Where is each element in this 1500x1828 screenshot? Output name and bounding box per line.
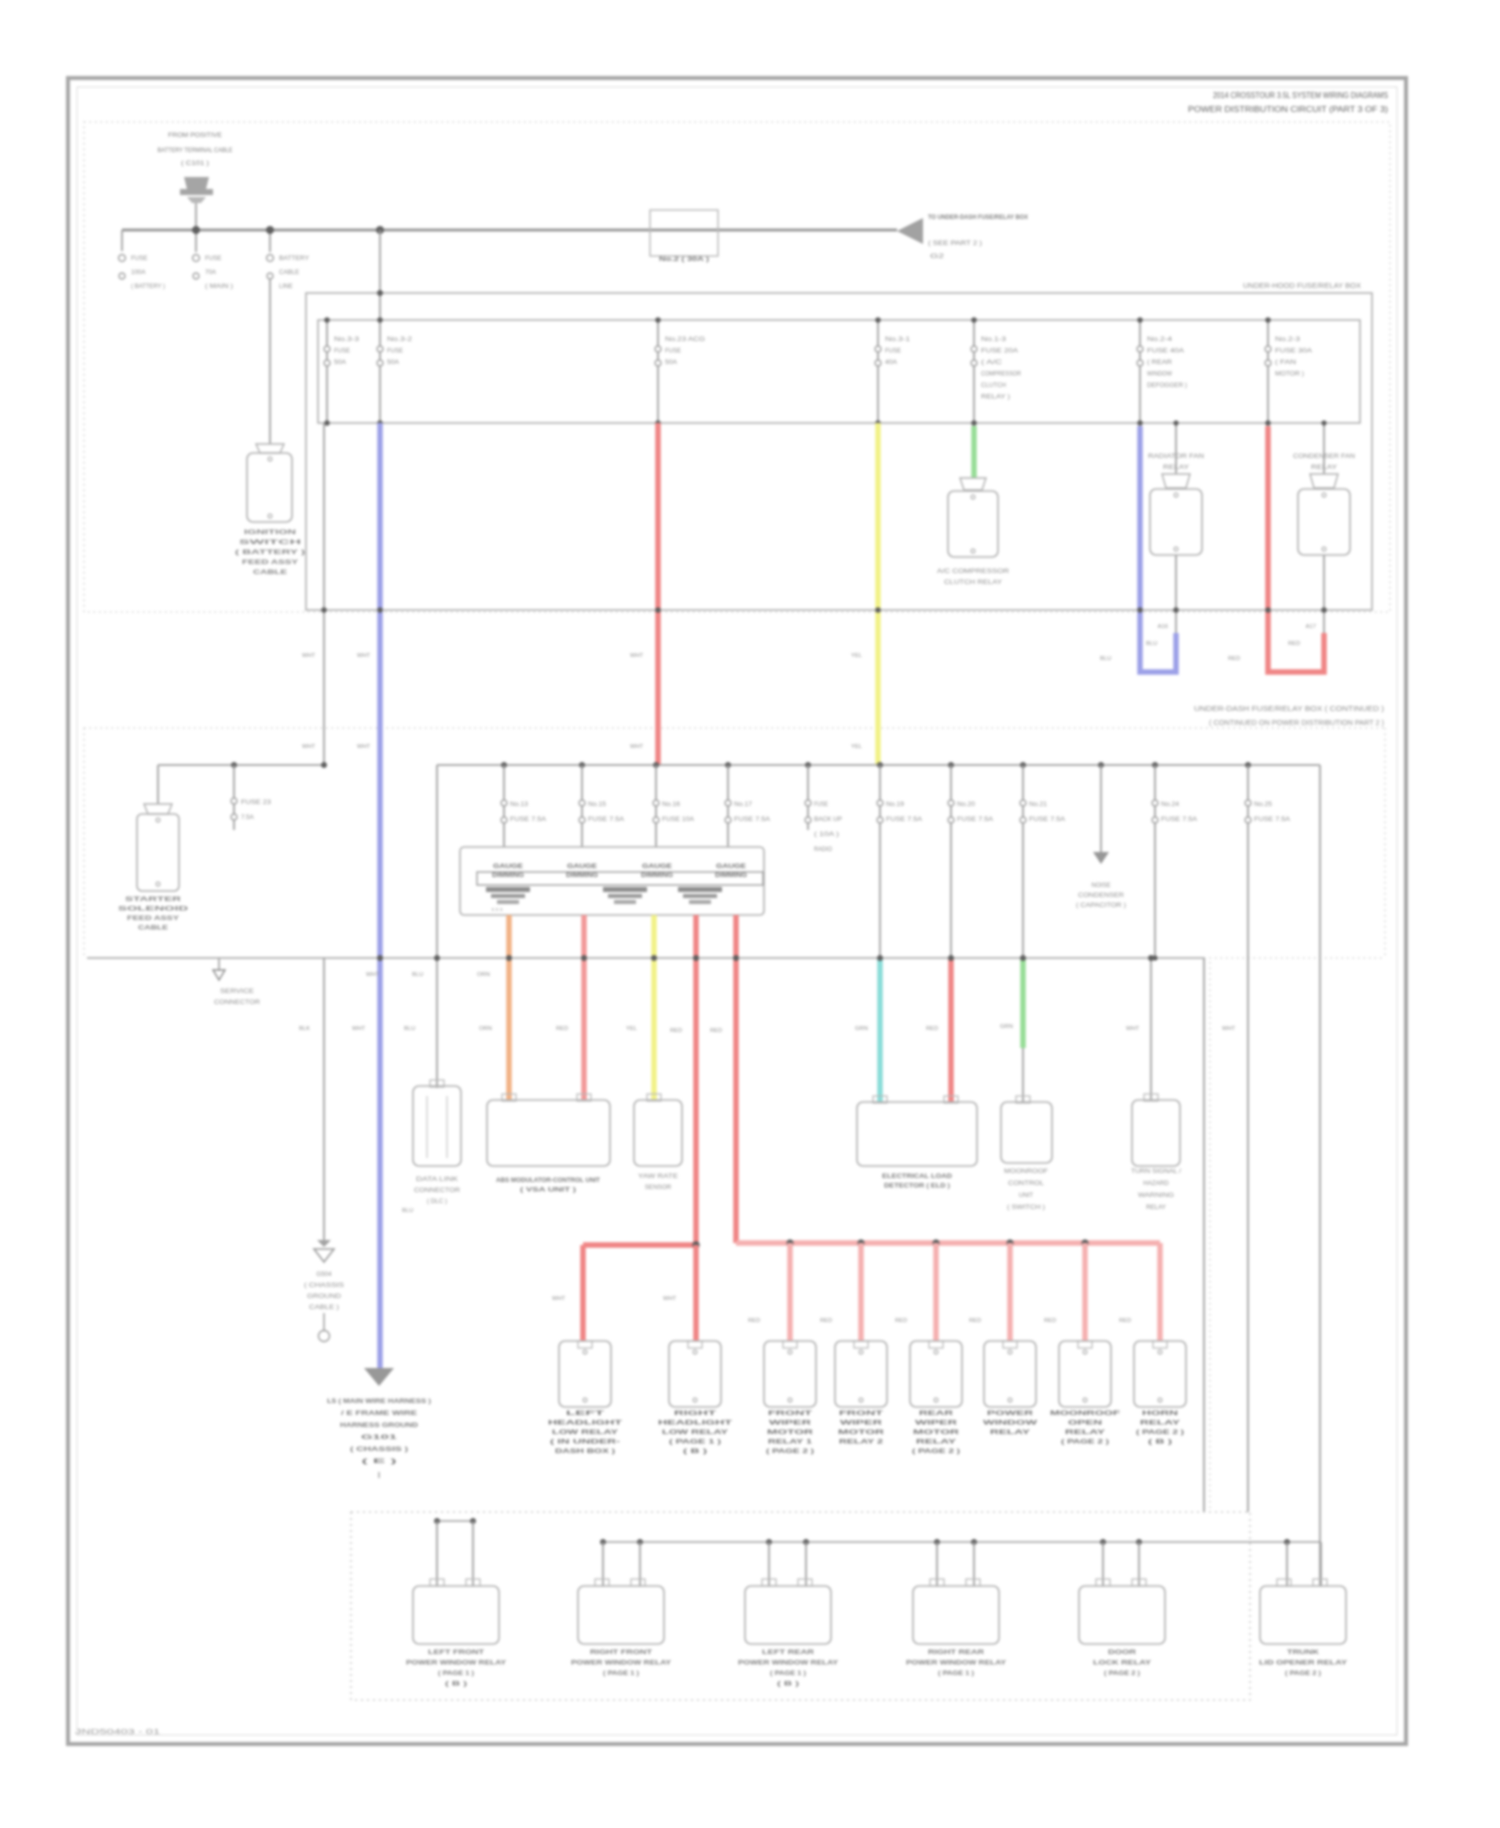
svg-text:No.3-1: No.3-1: [885, 336, 911, 343]
svg-text:FEED ASSY: FEED ASSY: [242, 559, 299, 566]
svg-text:BLU: BLU: [402, 1208, 413, 1214]
svg-text:YEL: YEL: [851, 744, 863, 750]
svg-text:FUSE: FUSE: [334, 348, 350, 355]
svg-text:WHT: WHT: [357, 653, 371, 659]
svg-text:HORN: HORN: [1142, 1410, 1178, 1417]
svg-text:ORN: ORN: [477, 972, 490, 978]
svg-text:FUSE 10A: FUSE 10A: [662, 817, 694, 823]
svg-text:FUSE: FUSE: [665, 348, 681, 355]
svg-text:No.19: No.19: [886, 802, 905, 808]
svg-text:( BATTERY ): ( BATTERY ): [131, 283, 165, 290]
svg-text:No.25: No.25: [1254, 802, 1273, 808]
svg-text:CONNECTOR: CONNECTOR: [214, 999, 261, 1006]
svg-text:RED: RED: [748, 1318, 760, 1324]
svg-text:No.23 ACG: No.23 ACG: [665, 336, 705, 343]
svg-text:RELAY: RELAY: [1140, 1420, 1181, 1427]
svg-text:FUSE: FUSE: [205, 255, 222, 262]
svg-text:( PAGE 2 ): ( PAGE 2 ): [1104, 1670, 1140, 1677]
svg-text:POWER WINDOW RELAY: POWER WINDOW RELAY: [738, 1660, 839, 1667]
svg-text:RED: RED: [1228, 656, 1240, 662]
svg-text:DIMMING: DIMMING: [492, 873, 524, 879]
svg-text:No.1-3: No.1-3: [981, 336, 1007, 343]
svg-text:REAR: REAR: [919, 1410, 953, 1417]
svg-text:LINE: LINE: [279, 283, 293, 290]
svg-text:RED: RED: [969, 1318, 981, 1324]
svg-text:LEFT: LEFT: [566, 1410, 604, 1417]
svg-text:2014 CROSSTOUR 3.5L SYSTEM: 2014 CROSSTOUR 3.5L SYSTEM WIRING DIAGRA…: [1213, 90, 1388, 100]
svg-text:MOONROOF: MOONROOF: [1050, 1410, 1120, 1417]
svg-text:No.3-2: No.3-2: [387, 336, 413, 343]
svg-text:50A: 50A: [387, 359, 400, 366]
svg-text:LOW RELAY: LOW RELAY: [662, 1429, 729, 1436]
svg-text:FUSE 7.5A: FUSE 7.5A: [1161, 817, 1197, 823]
svg-text:( CHASSIS: ( CHASSIS: [304, 1282, 344, 1289]
svg-text:MOTOR: MOTOR: [913, 1429, 959, 1436]
svg-text:( FAN: ( FAN: [1275, 359, 1296, 366]
svg-text:WHT: WHT: [352, 1026, 366, 1032]
svg-text:GRN: GRN: [1000, 1024, 1013, 1030]
svg-text:CABLE ): CABLE ): [309, 1304, 339, 1311]
svg-text:( PAGE 2 ): ( PAGE 2 ): [912, 1448, 960, 1455]
svg-text:HAZARD: HAZARD: [1143, 1180, 1169, 1187]
svg-text:( CONTINUED ON POWER DISTRI: ( CONTINUED ON POWER DISTRIBUTION PART 2…: [1209, 720, 1384, 727]
svg-text:MOONROOF: MOONROOF: [1004, 1168, 1048, 1175]
svg-text:RELAY ): RELAY ): [981, 394, 1010, 401]
svg-text:( B ): ( B ): [683, 1448, 707, 1455]
svg-text:( PAGE 1 ): ( PAGE 1 ): [438, 1670, 474, 1677]
svg-text:WIPER: WIPER: [840, 1420, 882, 1427]
svg-text:( B ): ( B ): [445, 1681, 467, 1688]
svg-text:POWER: POWER: [987, 1410, 1033, 1417]
svg-text:DOOR: DOOR: [1108, 1649, 1137, 1656]
svg-text:DIMMING: DIMMING: [715, 873, 747, 879]
svg-text:MOTOR: MOTOR: [767, 1429, 813, 1436]
svg-text:HEADLIGHT: HEADLIGHT: [658, 1420, 732, 1427]
svg-text:A17: A17: [1306, 624, 1316, 630]
svg-text:UNDER-HOOD FUSE/RELAY BOX: UNDER-HOOD FUSE/RELAY BOX: [1243, 283, 1361, 290]
svg-text:BLU: BLU: [1100, 656, 1111, 662]
svg-text:50A: 50A: [665, 359, 678, 366]
svg-text:BLU: BLU: [412, 972, 423, 978]
svg-text:CABLE: CABLE: [253, 569, 288, 576]
svg-text:DIMMING: DIMMING: [641, 873, 673, 879]
svg-text:COMPRESSOR: COMPRESSOR: [981, 371, 1021, 378]
svg-text:FRONT: FRONT: [839, 1410, 883, 1417]
svg-text:ABS MODULATOR-CONTROL UNIT: ABS MODULATOR-CONTROL UNIT: [496, 1177, 600, 1184]
svg-text:WIPER: WIPER: [915, 1420, 957, 1427]
svg-text:LOCK RELAY: LOCK RELAY: [1093, 1660, 1152, 1667]
svg-text:G101: G101: [361, 1434, 397, 1441]
svg-text:CONDENSER FAN: CONDENSER FAN: [1293, 453, 1355, 460]
svg-text:SERVICE: SERVICE: [220, 988, 254, 995]
svg-text:WIPER: WIPER: [769, 1420, 811, 1427]
svg-text:POWER WINDOW RELAY: POWER WINDOW RELAY: [571, 1660, 672, 1667]
svg-text:RELAY: RELAY: [1311, 464, 1337, 471]
svg-text:RED: RED: [1119, 1318, 1131, 1324]
svg-text:RED: RED: [556, 1026, 568, 1032]
svg-text:( B ): ( B ): [777, 1681, 799, 1688]
svg-text:FUSE: FUSE: [885, 348, 901, 355]
svg-text:( PAGE 2 ): ( PAGE 2 ): [766, 1448, 814, 1455]
svg-text:WHT: WHT: [630, 744, 644, 750]
svg-text:TRUNK: TRUNK: [1287, 1649, 1320, 1656]
svg-text:No.20: No.20: [957, 802, 976, 808]
svg-text:RIGHT: RIGHT: [674, 1410, 716, 1417]
svg-text:WHT: WHT: [630, 653, 644, 659]
svg-text:FUSE 7.5A: FUSE 7.5A: [734, 817, 770, 823]
svg-text:WHT: WHT: [1222, 1026, 1236, 1032]
svg-text:( IN UNDER-: ( IN UNDER-: [550, 1439, 620, 1446]
svg-text:BLK: BLK: [299, 1026, 310, 1032]
svg-text:BLU: BLU: [1146, 641, 1157, 647]
svg-text:FUSE 23: FUSE 23: [241, 799, 272, 806]
svg-text:G504: G504: [316, 1271, 332, 1278]
svg-text:No.21: No.21: [1029, 802, 1048, 808]
svg-text:WHT: WHT: [302, 744, 316, 750]
svg-text:DATA LINK: DATA LINK: [416, 1176, 459, 1183]
svg-text:OPEN: OPEN: [1068, 1420, 1102, 1427]
svg-text:WINDOW: WINDOW: [1147, 371, 1172, 378]
svg-text:DEFOGGER ): DEFOGGER ): [1147, 382, 1187, 389]
svg-text:FUSE 7.5A: FUSE 7.5A: [1029, 817, 1065, 823]
svg-text:7.5A: 7.5A: [241, 814, 255, 821]
svg-text:RELAY: RELAY: [916, 1439, 957, 1446]
svg-text:WHT: WHT: [552, 1296, 566, 1302]
svg-text:LID OPENER RELAY: LID OPENER RELAY: [1259, 1660, 1348, 1667]
svg-text:No.2-3: No.2-3: [1275, 336, 1301, 343]
svg-text:( CHASSIS ): ( CHASSIS ): [350, 1446, 408, 1453]
svg-text:No.2-4: No.2-4: [1147, 336, 1173, 343]
svg-text:SOLENOID: SOLENOID: [118, 906, 188, 913]
svg-text:TURN SIGNAL /: TURN SIGNAL /: [1131, 1168, 1181, 1175]
svg-text:FRONT: FRONT: [768, 1410, 812, 1417]
svg-text:LEFT REAR: LEFT REAR: [762, 1649, 815, 1656]
svg-text:No.16: No.16: [662, 802, 681, 808]
svg-text:YAW RATE: YAW RATE: [638, 1173, 678, 1180]
svg-text:WHT: WHT: [1126, 1026, 1140, 1032]
svg-text:A/C COMPRESSOR: A/C COMPRESSOR: [937, 568, 1010, 575]
svg-text:( PAGE 2 ): ( PAGE 2 ): [1285, 1670, 1321, 1677]
svg-text:UNDER-DASH FUSE/RELAY BOX (: UNDER-DASH FUSE/RELAY BOX ( CONTINUED ): [1194, 706, 1384, 713]
svg-text:YEL: YEL: [851, 653, 863, 659]
svg-text:RADIATOR FAN: RADIATOR FAN: [1148, 453, 1204, 460]
svg-text:RIGHT FRONT: RIGHT FRONT: [590, 1649, 652, 1656]
svg-text:No.17: No.17: [734, 802, 753, 808]
svg-text:LEFT FRONT: LEFT FRONT: [428, 1649, 484, 1656]
svg-text:( PAGE 1 ): ( PAGE 1 ): [770, 1670, 806, 1677]
svg-text:WHT: WHT: [663, 1296, 677, 1302]
svg-text:GAUGE: GAUGE: [567, 864, 597, 870]
svg-text:FROM POSITIVE: FROM POSITIVE: [168, 132, 223, 139]
svg-text:YEL: YEL: [626, 1026, 638, 1032]
svg-text:FUSE 40A: FUSE 40A: [1147, 348, 1185, 355]
svg-text:FUSE 7.5A: FUSE 7.5A: [510, 817, 546, 823]
svg-text:FUSE 7.5A: FUSE 7.5A: [886, 817, 922, 823]
svg-text:( PAGE 2 ): ( PAGE 2 ): [1061, 1439, 1109, 1446]
svg-text:GAUGE: GAUGE: [493, 864, 523, 870]
svg-text:( B ): ( B ): [1148, 1439, 1172, 1446]
svg-text:( VSA UNIT ): ( VSA UNIT ): [520, 1187, 576, 1194]
svg-text:/ E FRAME WIRE: / E FRAME WIRE: [341, 1410, 418, 1417]
svg-text:( A/C: ( A/C: [981, 359, 1003, 366]
svg-text:FEED ASSY: FEED ASSY: [127, 915, 180, 922]
svg-text:SENSOR: SENSOR: [645, 1184, 672, 1191]
svg-text:BLU: BLU: [404, 1026, 415, 1032]
svg-text:FUSE 20A: FUSE 20A: [981, 348, 1019, 355]
svg-text:( BATTERY ): ( BATTERY ): [235, 549, 305, 556]
svg-text:GROUND: GROUND: [307, 1293, 342, 1300]
svg-text:BATTERY TERMINAL CABLE: BATTERY TERMINAL CABLE: [158, 147, 234, 154]
svg-text:( PAGE 2 ): ( PAGE 2 ): [1136, 1429, 1184, 1436]
svg-text:IGNITION: IGNITION: [244, 529, 296, 536]
svg-text:RED: RED: [1288, 641, 1300, 647]
svg-text:No.3-3: No.3-3: [334, 336, 360, 343]
svg-text:UNIT: UNIT: [1019, 1192, 1034, 1199]
svg-text:FUSE: FUSE: [814, 802, 828, 808]
svg-text:( PAGE 1 ): ( PAGE 1 ): [603, 1670, 639, 1677]
svg-text:MOTOR: MOTOR: [838, 1429, 884, 1436]
svg-text:FUSE: FUSE: [387, 348, 403, 355]
svg-text:RELAY: RELAY: [990, 1429, 1031, 1436]
svg-text:HARNESS GROUND: HARNESS GROUND: [340, 1422, 418, 1429]
svg-text:( SWITCH ): ( SWITCH ): [1007, 1204, 1045, 1211]
svg-text:RED: RED: [670, 1028, 682, 1034]
svg-text:( REAR: ( REAR: [1147, 359, 1173, 366]
svg-text:NOISE: NOISE: [1091, 882, 1110, 889]
svg-text:( E ): ( E ): [362, 1458, 397, 1465]
svg-text:CONNECTOR: CONNECTOR: [414, 1187, 461, 1194]
svg-text:FUSE 30A: FUSE 30A: [1275, 348, 1313, 355]
svg-text:( PAGE 1 ): ( PAGE 1 ): [938, 1670, 974, 1677]
svg-text:POWER DISTRIBUTION CIRCUIT: POWER DISTRIBUTION CIRCUIT (PART 3 OF 3): [1188, 104, 1388, 114]
svg-text:CLUTCH: CLUTCH: [981, 382, 1006, 389]
svg-text:No.24: No.24: [1161, 802, 1180, 808]
svg-text:CONTROL: CONTROL: [1008, 1180, 1045, 1187]
svg-text:DASH BOX ): DASH BOX ): [555, 1448, 615, 1455]
svg-text:RIGHT REAR: RIGHT REAR: [928, 1649, 985, 1656]
svg-text:WHT: WHT: [302, 653, 316, 659]
svg-text:RELAY: RELAY: [1163, 464, 1189, 471]
svg-text:( DLC ): ( DLC ): [427, 1198, 447, 1205]
svg-text:RELAY: RELAY: [1065, 1429, 1106, 1436]
svg-text:L5 ( MAIN WIRE HARNESS ): L5 ( MAIN WIRE HARNESS ): [327, 1398, 431, 1405]
svg-text:A16: A16: [1158, 624, 1168, 630]
svg-text:HEADLIGHT: HEADLIGHT: [548, 1420, 622, 1427]
svg-text:LOW RELAY: LOW RELAY: [552, 1429, 619, 1436]
svg-text:STARTER: STARTER: [125, 896, 181, 903]
svg-text:SWITCH: SWITCH: [239, 539, 301, 546]
svg-text:FUSE 7.5A: FUSE 7.5A: [588, 817, 624, 823]
svg-text:RED: RED: [926, 1026, 938, 1032]
svg-text:GRN: GRN: [855, 1026, 868, 1032]
svg-text:WHT: WHT: [357, 744, 371, 750]
svg-text:RED: RED: [820, 1318, 832, 1324]
svg-text:70A: 70A: [205, 269, 217, 276]
svg-text:FUSE: FUSE: [131, 255, 148, 262]
svg-text:CLUTCH RELAY: CLUTCH RELAY: [944, 579, 1003, 586]
svg-text:40A: 40A: [885, 359, 898, 366]
svg-text:G2: G2: [930, 254, 945, 260]
svg-text:POWER WINDOW RELAY: POWER WINDOW RELAY: [406, 1660, 507, 1667]
svg-text:BACK UP: BACK UP: [814, 817, 842, 823]
svg-text:POWER WINDOW RELAY: POWER WINDOW RELAY: [906, 1660, 1007, 1667]
svg-text:RELAY: RELAY: [1146, 1204, 1166, 1211]
svg-text:JND50403 - 01: JND50403 - 01: [75, 1727, 160, 1736]
svg-text:WHT: WHT: [366, 972, 380, 978]
svg-text:RED: RED: [710, 1028, 722, 1034]
svg-text:RED: RED: [1044, 1318, 1056, 1324]
svg-text:CONDENSER: CONDENSER: [1078, 892, 1125, 899]
svg-text:WARNING: WARNING: [1138, 1192, 1174, 1199]
svg-text:RELAY 2: RELAY 2: [839, 1439, 884, 1446]
svg-text:BATTERY: BATTERY: [279, 255, 309, 262]
svg-text:( C101 ): ( C101 ): [181, 160, 209, 167]
svg-text:RED: RED: [895, 1318, 907, 1324]
svg-text:( PAGE 1 ): ( PAGE 1 ): [669, 1439, 721, 1446]
svg-text:GAUGE: GAUGE: [642, 864, 672, 870]
svg-text:100A: 100A: [131, 269, 146, 276]
svg-text:( SEE PART 2 ): ( SEE PART 2 ): [928, 240, 982, 247]
svg-text:CABLE: CABLE: [279, 269, 299, 276]
svg-text:FUSE 7.5A: FUSE 7.5A: [957, 817, 993, 823]
svg-text:DETECTOR ( ELD ): DETECTOR ( ELD ): [884, 1183, 950, 1190]
svg-text:x x x: x x x: [491, 907, 502, 913]
svg-text:No.15: No.15: [588, 802, 607, 808]
svg-text:No.2 ( 30A ): No.2 ( 30A ): [659, 256, 709, 263]
svg-text:RELAY 1: RELAY 1: [768, 1439, 813, 1446]
svg-text:ORN: ORN: [479, 1026, 492, 1032]
svg-text:DIMMING: DIMMING: [566, 873, 598, 879]
svg-text:TO UNDER-DASH FUSE/RELAY BO: TO UNDER-DASH FUSE/RELAY BOX: [928, 214, 1029, 221]
svg-text:GAUGE: GAUGE: [716, 864, 746, 870]
svg-text:FUSE 7.5A: FUSE 7.5A: [1254, 817, 1290, 823]
svg-text:RADIO: RADIO: [814, 847, 832, 853]
svg-text:ELECTRICAL LOAD: ELECTRICAL LOAD: [882, 1173, 952, 1180]
svg-text:( MAIN ): ( MAIN ): [205, 283, 233, 290]
svg-text:50A: 50A: [334, 359, 347, 366]
svg-text:MOTOR ): MOTOR ): [1275, 371, 1304, 378]
svg-text:No.13: No.13: [510, 802, 529, 808]
svg-text:( CAPACITOR ): ( CAPACITOR ): [1076, 902, 1126, 909]
svg-text:( 10A ): ( 10A ): [814, 832, 839, 838]
svg-text:WINDOW: WINDOW: [983, 1420, 1038, 1427]
svg-text:CABLE: CABLE: [138, 925, 169, 932]
